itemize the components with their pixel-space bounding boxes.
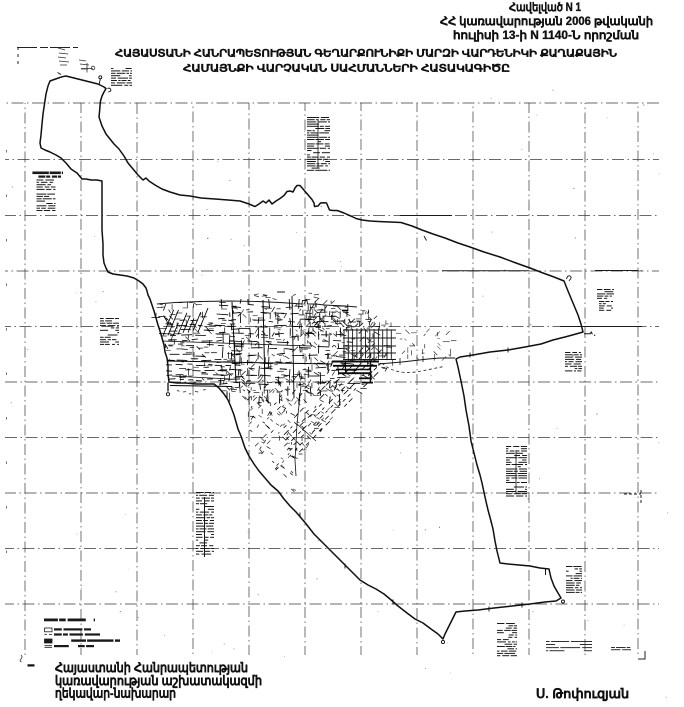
- svg-text:ղեկավար-նախարար: ղեկավար-նախարար: [55, 686, 176, 701]
- svg-text:ՀԱՅԱՍՏԱՆԻ ՀԱՆՐԱՊԵՏՈՒԹՅԱՆ ԳԵՂԱՐ: ՀԱՅԱՍՏԱՆԻ ՀԱՆՐԱՊԵՏՈՒԹՅԱՆ ԳԵՂԱՐՔՈՒՆԻՔԻ ՄԱ…: [115, 49, 618, 60]
- svg-text:Ս. Թոփուզյան: Ս. Թոփուզյան: [536, 686, 629, 701]
- svg-text:ՀԱՄԱՅՆՔԻ ՎԱՐՉԱԿԱՆ ՍԱՀՄԱՆՆԵՐԻ Հ: ՀԱՄԱՅՆՔԻ ՎԱՐՉԱԿԱՆ ՍԱՀՄԱՆՆԵՐԻ ՀԱՏԱԿԱԳԻԾԸ: [183, 64, 510, 75]
- svg-text:Հավելված N 1: Հավելված N 1: [509, 1, 582, 14]
- svg-text:հուլիսի 13-ի N 1140-Ն որոշման: հուլիսի 13-ի N 1140-Ն որոշման: [453, 28, 639, 42]
- svg-text:ՀՀ կառավարության 2006 թվականի: ՀՀ կառավարության 2006 թվականի: [440, 15, 653, 28]
